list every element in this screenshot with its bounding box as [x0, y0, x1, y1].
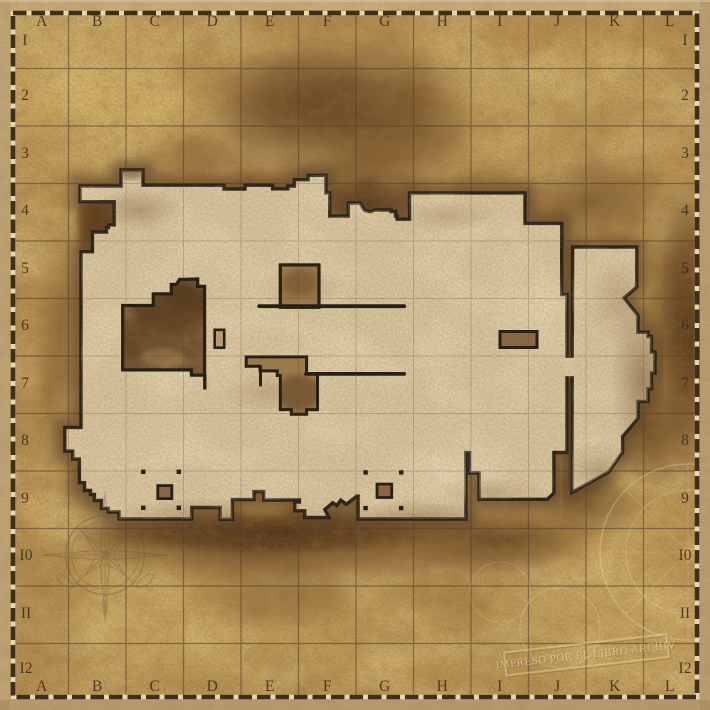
svg-text:K: K [609, 13, 621, 30]
svg-text:E: E [265, 678, 274, 695]
svg-text:2: 2 [21, 87, 29, 104]
svg-text:A: A [36, 13, 48, 30]
svg-text:B: B [92, 678, 102, 695]
svg-text:I2: I2 [20, 660, 33, 677]
svg-text:II: II [680, 605, 690, 622]
svg-text:7: 7 [21, 375, 29, 392]
svg-text:F: F [323, 678, 332, 695]
svg-text:2: 2 [681, 87, 689, 104]
svg-text:6: 6 [681, 317, 689, 334]
svg-text:L: L [665, 678, 674, 695]
svg-text:7: 7 [681, 375, 689, 392]
svg-text:I: I [497, 13, 502, 30]
svg-text:I: I [682, 32, 687, 49]
svg-text:L: L [665, 13, 674, 30]
svg-text:3: 3 [21, 145, 29, 162]
svg-text:5: 5 [681, 260, 689, 277]
svg-text:G: G [379, 13, 390, 30]
svg-text:C: C [150, 678, 160, 695]
svg-text:I: I [22, 32, 27, 49]
svg-text:8: 8 [21, 432, 29, 449]
svg-text:D: D [207, 13, 218, 30]
svg-text:H: H [437, 13, 448, 30]
svg-text:G: G [379, 678, 390, 695]
svg-text:B: B [92, 13, 102, 30]
svg-text:I2: I2 [679, 660, 692, 677]
svg-text:K: K [609, 678, 621, 695]
svg-text:J: J [554, 13, 560, 30]
svg-text:9: 9 [681, 490, 689, 507]
svg-text:3: 3 [681, 145, 689, 162]
svg-text:F: F [323, 13, 332, 30]
svg-text:I0: I0 [20, 547, 33, 564]
svg-text:E: E [265, 13, 274, 30]
svg-text:6: 6 [21, 317, 29, 334]
svg-text:I: I [497, 678, 502, 695]
svg-text:8: 8 [681, 432, 689, 449]
svg-text:H: H [437, 678, 448, 695]
svg-text:I0: I0 [679, 547, 692, 564]
svg-text:9: 9 [21, 490, 29, 507]
svg-text:A: A [36, 678, 48, 695]
svg-text:II: II [21, 605, 31, 622]
svg-text:J: J [554, 678, 560, 695]
svg-text:5: 5 [21, 260, 29, 277]
svg-text:D: D [207, 678, 218, 695]
svg-text:4: 4 [681, 202, 689, 219]
svg-text:C: C [150, 13, 160, 30]
svg-text:4: 4 [21, 202, 29, 219]
